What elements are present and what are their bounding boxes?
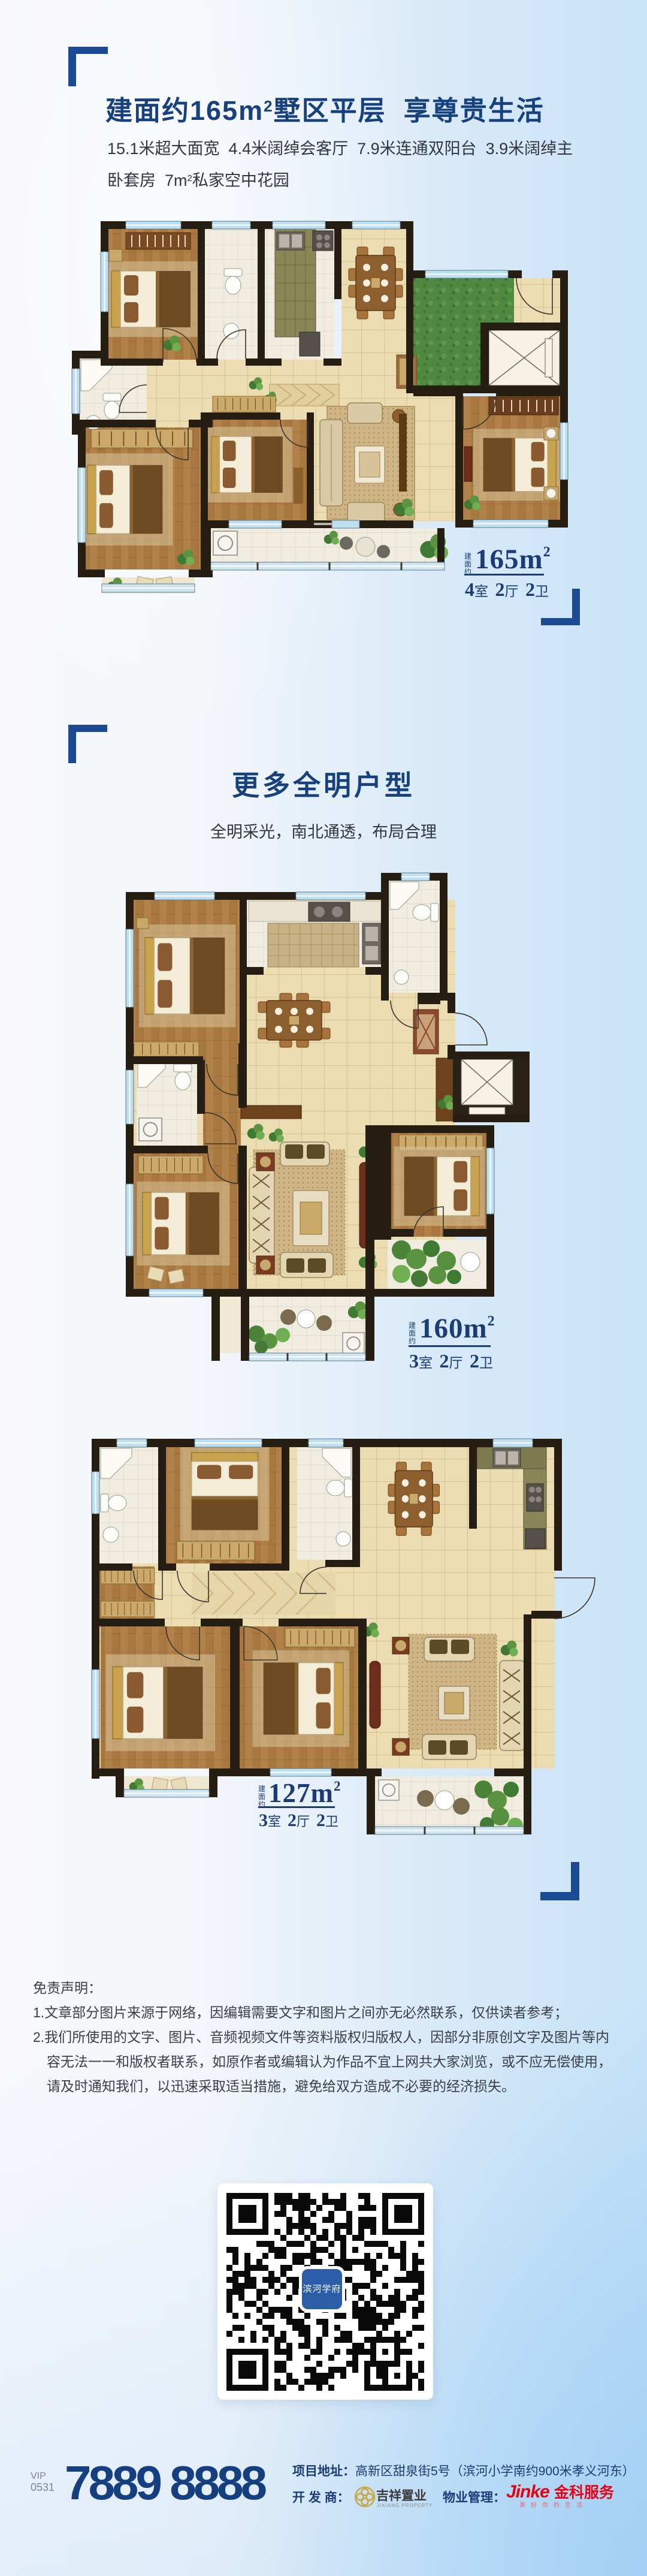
svg-text:金科服务: 金科服务 (554, 2484, 614, 2501)
svg-text:吉祥置业: 吉祥置业 (376, 2488, 427, 2503)
svg-text:JIXIANG PROPERTY: JIXIANG PROPERTY (377, 2503, 433, 2508)
svg-text:Jinke: Jinke (506, 2482, 549, 2502)
svg-text:美好你的生活: 美好你的生活 (519, 2501, 588, 2509)
